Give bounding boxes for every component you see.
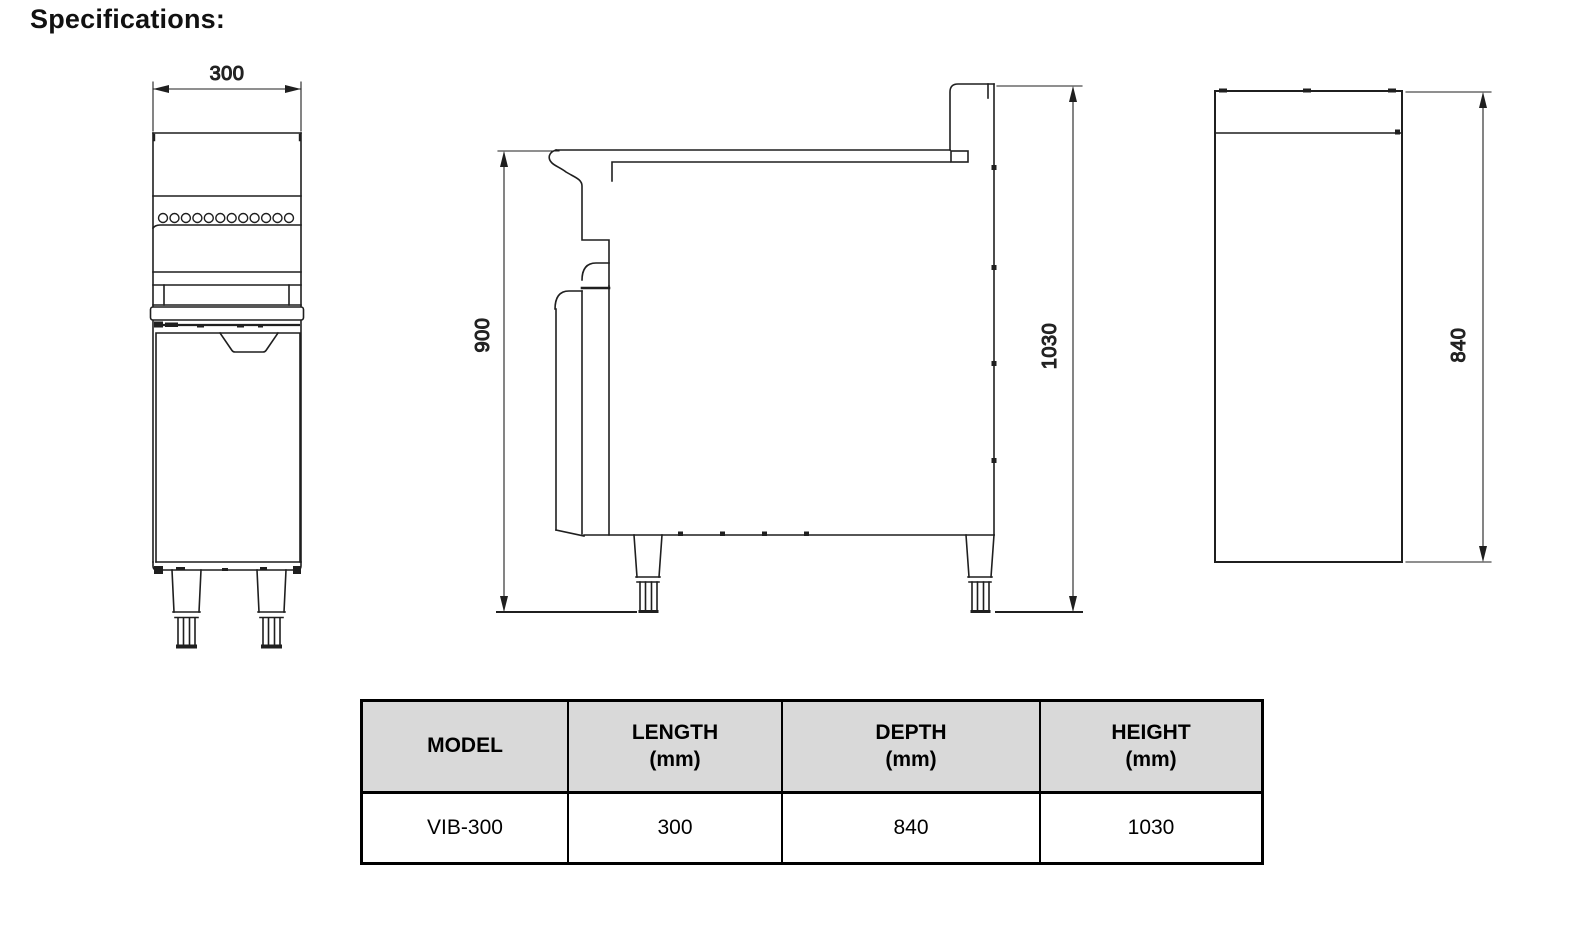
col-header-depth-unit: (mm) [783, 747, 1039, 773]
top-view-drawing: 840 [1215, 89, 1491, 563]
cell-length: 300 [568, 793, 782, 864]
cell-height: 1030 [1040, 793, 1263, 864]
specification-sheet: Specifications: 300 [0, 0, 1582, 952]
kick-bar [151, 307, 304, 320]
dim-arrow-up [1479, 92, 1487, 108]
col-header-length: LENGTH (mm) [568, 701, 782, 793]
col-header-model: MODEL [362, 701, 569, 793]
dim-arrow-right [285, 85, 301, 93]
col-header-height-unit: (mm) [1041, 747, 1261, 773]
dim-arrow-left [153, 85, 169, 93]
dim-arrow-up [500, 151, 508, 167]
front-view-drawing: 300 [151, 63, 304, 647]
col-header-height-label: HEIGHT [1111, 721, 1190, 744]
side-legs [634, 535, 994, 612]
worktop-height-dimension: 900 [472, 151, 559, 612]
top-view-body [1215, 89, 1402, 563]
base-band [153, 562, 301, 574]
col-header-length-unit: (mm) [569, 747, 781, 773]
side-door [556, 291, 584, 536]
spec-table-header: MODEL LENGTH (mm) DEPTH (mm) HEIGHT (mm) [362, 701, 1263, 793]
control-panel-band [153, 285, 301, 305]
dim-arrow-up [1069, 86, 1077, 102]
side-view-body [549, 84, 996, 612]
depth-dimension-label: 840 [1448, 328, 1470, 363]
spec-table-row: VIB-300 300 840 1030 [362, 793, 1263, 864]
dim-arrow-down [1479, 546, 1487, 562]
worktop-rear-joint [951, 151, 968, 162]
top-fixings [1219, 89, 1400, 135]
door-handle-recess [220, 333, 278, 352]
col-header-height: HEIGHT (mm) [1040, 701, 1263, 793]
front-nose-profile [549, 150, 609, 286]
overall-height-dimension-label: 1030 [1039, 323, 1061, 370]
cell-model: VIB-300 [362, 793, 569, 864]
worktop-height-dimension-label: 900 [472, 318, 494, 353]
front-view-body [151, 133, 304, 647]
front-legs [172, 570, 286, 647]
burner-holes [159, 214, 294, 223]
col-header-model-label: MODEL [427, 734, 503, 757]
control-lip [582, 263, 609, 280]
side-view-drawing: 900 1030 [472, 84, 1082, 612]
door [156, 333, 300, 562]
dim-arrow-down [1069, 596, 1077, 612]
door-hinge-strip [154, 322, 299, 328]
cell-depth: 840 [782, 793, 1040, 864]
col-header-depth-label: DEPTH [875, 721, 946, 744]
spec-table: MODEL LENGTH (mm) DEPTH (mm) HEIGHT (mm) [360, 699, 1264, 865]
front-width-dimension-label: 300 [210, 63, 245, 85]
dim-arrow-down [500, 596, 508, 612]
col-header-depth: DEPTH (mm) [782, 701, 1040, 793]
col-header-length-label: LENGTH [632, 721, 718, 744]
depth-dimension: 840 [1406, 92, 1491, 562]
front-width-dimension: 300 [153, 63, 301, 131]
door-top-lip [555, 291, 582, 309]
overall-height-dimension: 1030 [997, 86, 1082, 612]
